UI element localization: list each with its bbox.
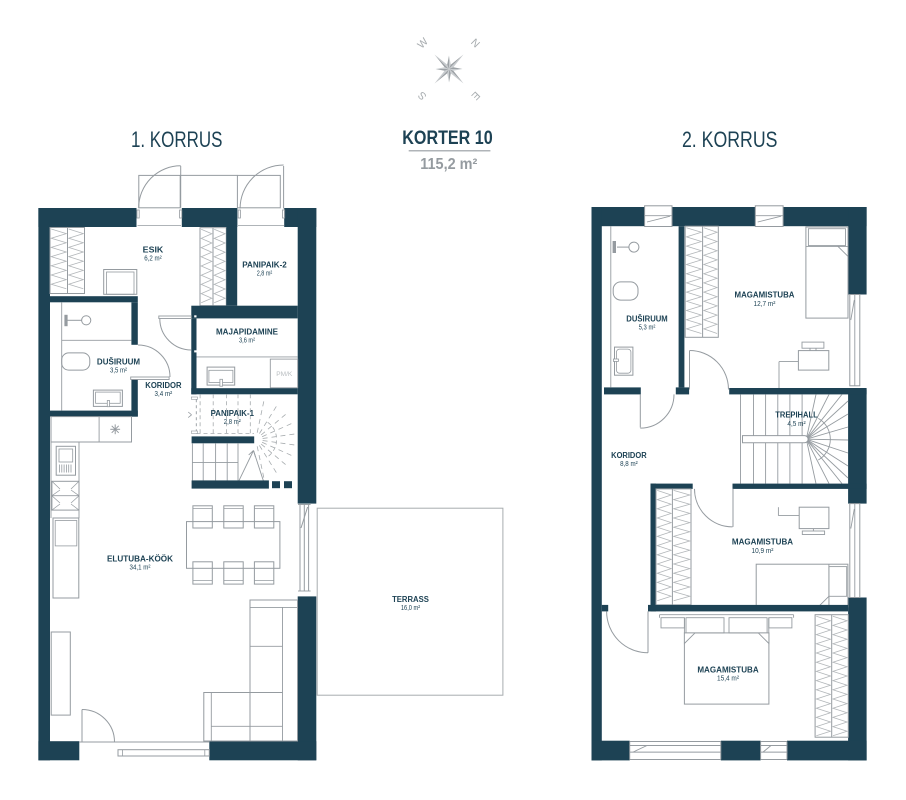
svg-text:3,5 m²: 3,5 m² (110, 368, 127, 375)
svg-text:MAJAPIDAMINE: MAJAPIDAMINE (216, 327, 278, 336)
svg-text:4,5 m²: 4,5 m² (787, 421, 806, 428)
svg-text:3,6 m²: 3,6 m² (239, 338, 256, 345)
svg-text:16,0 m²: 16,0 m² (401, 605, 421, 612)
svg-text:TREPIHALL: TREPIHALL (775, 411, 818, 420)
svg-text:10,9 m²: 10,9 m² (752, 548, 775, 555)
svg-text:3,4 m²: 3,4 m² (155, 391, 173, 398)
svg-text:MAGAMISTUBA: MAGAMISTUBA (735, 291, 795, 300)
svg-text:8,8 m²: 8,8 m² (620, 461, 638, 468)
svg-text:6,2 m²: 6,2 m² (144, 256, 162, 263)
svg-text:115,2 m²: 115,2 m² (420, 156, 477, 173)
svg-text:DUŠIRUUM: DUŠIRUUM (626, 314, 667, 323)
svg-text:DUŠIRUUM: DUŠIRUUM (97, 358, 140, 367)
svg-text:2,8 m²: 2,8 m² (257, 271, 273, 278)
svg-text:KORTER 10: KORTER 10 (402, 128, 492, 149)
svg-text:12,7 m²: 12,7 m² (754, 301, 777, 308)
svg-text:2. KORRUS: 2. KORRUS (682, 127, 778, 152)
svg-text:15,4 m²: 15,4 m² (717, 676, 740, 683)
svg-text:MAGAMISTUBA: MAGAMISTUBA (697, 665, 759, 674)
svg-text:PM/K: PM/K (276, 371, 292, 378)
svg-text:KORIDOR: KORIDOR (611, 451, 647, 460)
svg-text:ESIK: ESIK (143, 245, 164, 254)
svg-text:ELUTUBA-KÖÖK: ELUTUBA-KÖÖK (107, 555, 173, 564)
svg-text:2,8 m²: 2,8 m² (224, 419, 242, 426)
svg-text:KORIDOR: KORIDOR (145, 381, 182, 390)
svg-text:34,1 m²: 34,1 m² (130, 565, 152, 572)
svg-text:1. KORRUS: 1. KORRUS (131, 127, 223, 152)
svg-text:TERRASS: TERRASS (392, 595, 429, 604)
svg-text:PANIPAIK-2: PANIPAIK-2 (242, 260, 287, 269)
svg-text:PANIPAIK-1: PANIPAIK-1 (211, 409, 255, 418)
svg-text:5,3 m²: 5,3 m² (639, 325, 656, 332)
svg-text:MAGAMISTUBA: MAGAMISTUBA (732, 538, 794, 547)
